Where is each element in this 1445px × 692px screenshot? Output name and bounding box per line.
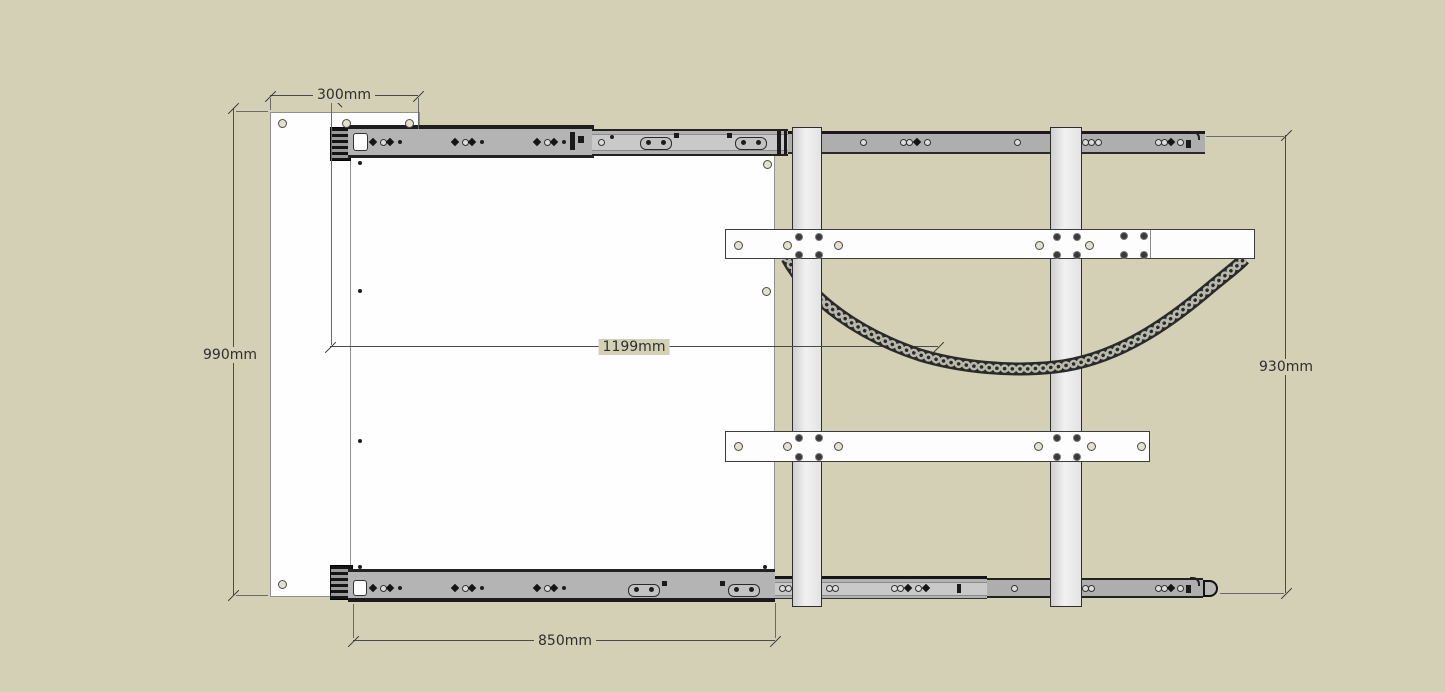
crossbar-screw [1120, 251, 1128, 259]
bottom-slide-bumper [1203, 580, 1218, 597]
top-slide-inner-rail[interactable] [788, 131, 1205, 154]
dim-300-label: 300mm [313, 87, 375, 103]
crossbar-hole [783, 241, 792, 250]
screw-hole [860, 139, 867, 146]
dim-990-ext-top [236, 111, 268, 112]
dim-930-label: 930mm [1255, 359, 1317, 375]
crossbar-screw [795, 453, 803, 461]
screw-hole [598, 139, 605, 146]
crossbar-screw [815, 434, 823, 442]
crossbar-hole [1085, 241, 1094, 250]
slide-stop [1186, 585, 1191, 593]
crossbar-screw [1120, 232, 1128, 240]
crossbar-screw [795, 233, 803, 241]
screw-hole [278, 119, 287, 128]
crossbar-hole [734, 241, 743, 250]
crossbar-screw [815, 453, 823, 461]
screw-hole [906, 139, 913, 146]
slide-slot [728, 584, 760, 597]
slide-connector [784, 131, 787, 154]
drawing-canvas[interactable]: 300mm 990mm 1199mm 850mm 930mm [0, 0, 1445, 692]
crossbar-hole [834, 442, 843, 451]
dim-850-label: 850mm [534, 633, 596, 649]
screw-hole [1088, 139, 1095, 146]
screw-hole [762, 287, 771, 296]
crossbar-hole [783, 442, 792, 451]
slide-slot [628, 584, 660, 597]
screw-hole [405, 119, 414, 128]
screw-hole [610, 135, 614, 139]
screw-hole [398, 140, 402, 144]
dim-850-ext-right [775, 603, 776, 638]
crossbar-hole [1137, 442, 1146, 451]
top-slide-cap [353, 133, 368, 151]
vertical-bar-left-front [792, 252, 822, 327]
slide-slot [640, 137, 672, 150]
upper-crossbar[interactable] [725, 229, 1255, 259]
screw-hole [763, 565, 767, 569]
dimension-tick [933, 342, 944, 353]
screw-hole [1014, 139, 1021, 146]
slide-connector [777, 131, 781, 154]
crossbar-screw [1053, 434, 1061, 442]
screw-hole [1177, 139, 1184, 146]
slide-tab [674, 133, 679, 138]
vertical-bar-left[interactable] [792, 127, 822, 607]
dim-1199-label: 1199mm [599, 339, 670, 355]
upper-crossbar-seam [1150, 230, 1151, 258]
screw-hole [278, 580, 287, 589]
slide-tab [662, 581, 667, 586]
screw-hole [1011, 585, 1018, 592]
screw-hole [785, 585, 792, 592]
crossbar-screw [795, 434, 803, 442]
dim-1199-ext [331, 103, 332, 345]
crossbar-screw [1073, 233, 1081, 241]
dim-930-ext-top [1206, 136, 1284, 137]
crossbar-hole [1035, 241, 1044, 250]
screw-hole [1177, 585, 1184, 592]
crossbar-hole [1034, 442, 1043, 451]
crossbar-screw [815, 251, 823, 259]
screw-hole [398, 586, 402, 590]
crossbar-screw [1140, 251, 1148, 259]
crossbar-screw [1053, 251, 1061, 259]
vertical-bar-right[interactable] [1050, 127, 1082, 607]
crossbar-screw [795, 251, 803, 259]
crossbar-screw [1140, 232, 1148, 240]
screw-hole [358, 289, 362, 293]
slide-stop [1186, 140, 1191, 148]
screw-hole [915, 585, 922, 592]
crossbar-screw [1073, 434, 1081, 442]
screw-hole [763, 160, 772, 169]
screw-hole [562, 140, 566, 144]
screw-hole [1088, 585, 1095, 592]
screw-hole [480, 140, 484, 144]
dim-850-ext-left [353, 604, 354, 638]
screw-hole [358, 439, 362, 443]
bottom-slide-cap [353, 580, 367, 596]
screw-hole [562, 586, 566, 590]
slide-connector [578, 136, 584, 143]
screw-hole [358, 161, 362, 165]
slide-tab [720, 581, 725, 586]
slide-tab [727, 133, 732, 138]
screw-hole [1095, 139, 1102, 146]
dim-990-ext-bottom [236, 595, 268, 596]
dim-930-ext-bottom [1220, 593, 1284, 594]
crossbar-hole [834, 241, 843, 250]
slide-connector [570, 132, 575, 150]
screw-hole [358, 565, 362, 569]
slide-stop [957, 584, 961, 593]
screw-hole [832, 585, 839, 592]
crossbar-screw [815, 233, 823, 241]
crossbar-screw [1053, 233, 1061, 241]
screw-hole [342, 119, 351, 128]
sliding-panel[interactable] [350, 129, 775, 597]
bottom-slide-outer-rail[interactable] [348, 569, 775, 602]
crossbar-hole [734, 442, 743, 451]
screw-hole [480, 586, 484, 590]
crossbar-screw [1073, 251, 1081, 259]
dim-300-ext-left [270, 98, 271, 110]
crossbar-screw [1073, 453, 1081, 461]
crossbar-screw [1053, 453, 1061, 461]
dim-300-ext-right [418, 98, 419, 129]
screw-hole [924, 139, 931, 146]
screw-hole [897, 585, 904, 592]
dim-990-label: 990mm [199, 347, 261, 363]
crossbar-hole [1087, 442, 1096, 451]
slide-slot [735, 137, 767, 150]
